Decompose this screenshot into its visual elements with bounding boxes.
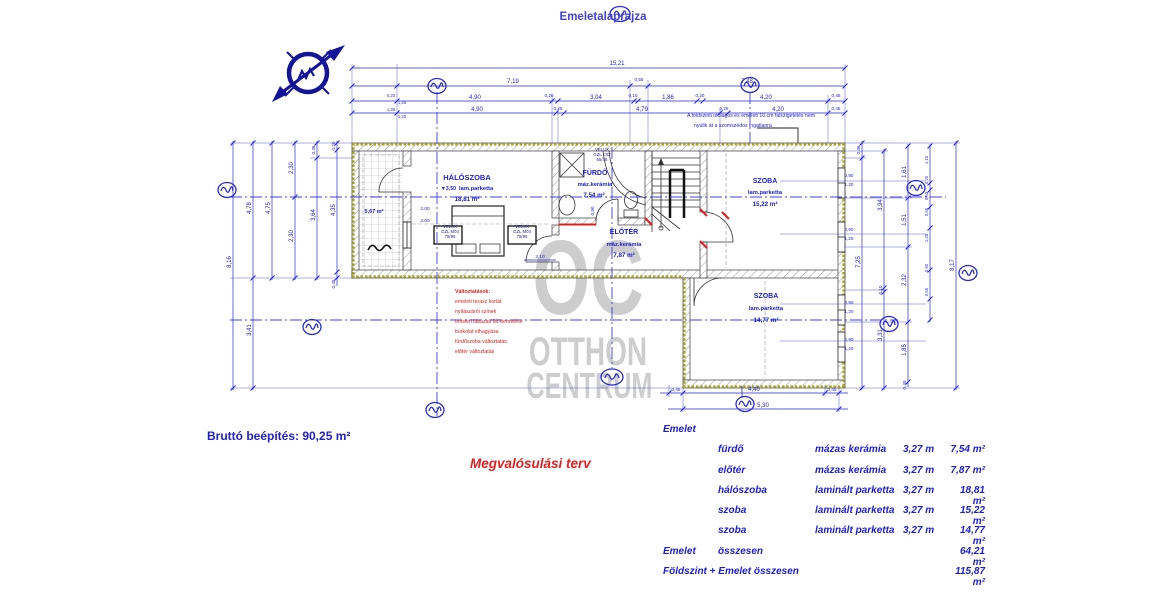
window-tag: 0,90 xyxy=(845,227,854,232)
dim-label: 3,64 xyxy=(311,209,317,221)
summary-height: 3,27 m xyxy=(903,525,945,536)
staircase xyxy=(652,151,700,232)
insulation-note: nyúlik át a szomszédos ingatlanra xyxy=(694,123,772,129)
dim-label: 1,85 xyxy=(902,344,908,356)
velux-label: 55/78 xyxy=(597,157,608,162)
dim-label: 0,55 xyxy=(635,77,644,82)
dim-label: 0,53 xyxy=(924,191,929,200)
summary-height: 3,27 m xyxy=(903,505,945,516)
dim-label: 7,48 xyxy=(741,79,753,85)
room-finish: máz.kerámia xyxy=(578,182,614,188)
velux-label: 78/98 xyxy=(445,234,456,239)
dim-label: 0,10 xyxy=(878,285,883,294)
dim-label: 2,30 xyxy=(289,162,295,174)
dim-label: 0,65 xyxy=(924,287,929,296)
dim-label: 0,25 xyxy=(720,106,729,111)
summary-area: 14,77 m² xyxy=(945,525,985,547)
dim-label: 7,19 xyxy=(507,79,519,85)
summary-height: 3,27 m xyxy=(903,444,945,455)
room-name: FÜRDŐ xyxy=(583,168,608,177)
room-name: ELŐTÉR xyxy=(610,227,638,236)
summary-area: 7,87 m² xyxy=(945,465,985,476)
dim-label: 1,26 xyxy=(398,100,407,105)
change-note: Változtatások: xyxy=(455,289,490,295)
summary-header: Emelet xyxy=(663,424,718,435)
dim-label: 7,25 xyxy=(856,256,862,268)
dim-label: 1,51 xyxy=(902,214,908,226)
window-tag: 1,20 xyxy=(845,182,854,187)
change-note: előtér változtatás xyxy=(455,349,495,355)
dim-label: 0,46 xyxy=(856,145,861,154)
summary-total-area: 64,21 m² xyxy=(945,546,985,568)
plan-type-label: Megvalósulási terv xyxy=(470,456,591,471)
dim-label: 1,20 xyxy=(398,114,407,119)
dim-label: 0,20 xyxy=(387,93,396,98)
gross-area-label: Bruttó beépítés: 90,25 m² xyxy=(207,429,350,443)
dim-label: 0,25 xyxy=(554,106,563,111)
terrace-area: 5,67 m² xyxy=(365,208,384,215)
washbasin xyxy=(559,195,575,215)
note-leader xyxy=(757,128,798,143)
dim-label: 4,20 xyxy=(760,95,772,101)
summary-height: 3,27 m xyxy=(903,465,945,476)
summary-grand-label: Földszint + Emelet összesen xyxy=(663,566,945,577)
dim-label: 0,46 xyxy=(311,145,316,154)
summary-finish: laminált parketta xyxy=(815,485,903,496)
window-tag: 0,90 xyxy=(845,337,854,342)
dim-label: 1,15 xyxy=(924,155,929,164)
dim-label: 0,45 xyxy=(832,93,841,98)
room-finish: lam.parketta xyxy=(749,306,784,312)
dim-label: 4,90 xyxy=(469,95,481,101)
dim-label: 0,45 xyxy=(832,106,841,111)
window-tag: 0,90 xyxy=(845,300,854,305)
dim-label: 0,20 xyxy=(696,93,705,98)
dim-label: 0,45 xyxy=(828,387,837,392)
room-name: HÁLÓSZOBA xyxy=(443,173,491,182)
room-area: 7,54 m² xyxy=(583,192,604,199)
dim-label: 0,90 xyxy=(924,263,929,272)
dim-label: 0,20 xyxy=(331,141,336,150)
dim-label: 4,78 xyxy=(247,202,253,214)
compass-rose xyxy=(272,45,345,102)
window-tag: 1,20 xyxy=(845,309,854,314)
room-area: 15,22 m² xyxy=(753,201,778,208)
dim-label: 3,04 xyxy=(590,95,602,101)
change-note: emeleti lábazati fal kiemelése xyxy=(455,319,523,325)
toilet-tank xyxy=(624,210,638,217)
summary-area: 15,22 m² xyxy=(945,505,985,527)
area-summary-table: Emelet fürdő mázas kerámia 3,27 m 7,54 m… xyxy=(663,424,985,586)
dim-label: 0,10 xyxy=(629,93,638,98)
insulation-note: A földszinti utólagos és emeleti 10 cm f… xyxy=(687,113,815,119)
summary-room: hálószoba xyxy=(718,485,815,496)
dim-label: 4,90 xyxy=(471,107,483,113)
summary-area: 18,81 m² xyxy=(945,485,985,507)
room-finish: lam.parketta xyxy=(748,190,783,196)
summary-finish: mázas kerámia xyxy=(815,444,903,455)
dim-label: 4,35 xyxy=(331,204,337,216)
summary-finish: laminált parketta xyxy=(815,505,903,516)
summary-area: 7,54 m² xyxy=(945,444,985,455)
dim-label: 8,17 xyxy=(950,259,956,271)
room-finish-text: lam.parketta xyxy=(459,186,494,192)
page-title: Emeletalaprajza xyxy=(538,11,668,23)
summary-grand-area: 115,87 m² xyxy=(945,566,985,588)
dim-label: 5,30 xyxy=(757,403,769,409)
summary-room: előtér xyxy=(718,465,815,476)
summary-room: szoba xyxy=(718,525,815,536)
room-finish: máz.kerámia xyxy=(607,242,643,248)
dim-label: 0,45 xyxy=(672,387,681,392)
dim-label: 1,36 xyxy=(387,107,396,112)
summary-height: 3,27 m xyxy=(903,485,945,496)
dim-label: 0,20 xyxy=(924,175,929,184)
summary-total-word: összesen xyxy=(718,546,815,557)
room-finish: ▼3,50lam.parketta xyxy=(441,186,494,192)
summary-room: szoba xyxy=(718,505,815,516)
dim-label: 1,61 xyxy=(902,166,908,178)
window-tag: 1,20 xyxy=(845,236,854,241)
room-area: 18,81 m² xyxy=(455,196,480,203)
change-note: burkolat elhagyása xyxy=(455,329,499,335)
dim-label: 0,45 xyxy=(331,279,336,288)
summary-room: fürdő xyxy=(718,444,815,455)
velux-label: 78/98 xyxy=(517,234,528,239)
dim-label: 1,28 xyxy=(924,233,929,242)
dim-label: 0,45 xyxy=(902,380,907,389)
dim-label: 2,00 xyxy=(420,218,430,224)
dim-label: 0,20 xyxy=(545,93,554,98)
window-tag: 1,20 xyxy=(845,346,854,351)
summary-finish: mázas kerámia xyxy=(815,465,903,476)
dim-label: 0,65 xyxy=(924,207,929,216)
dim-label: 3,31 xyxy=(878,329,884,341)
dim-label: 2,10 xyxy=(535,254,545,260)
change-note: fürdőszoba változtatás xyxy=(455,339,507,345)
dim-label: 3,94 xyxy=(878,199,884,211)
dim-label: 4,79 xyxy=(636,107,648,113)
room-area: 14,77 m² xyxy=(754,317,779,324)
summary-finish: laminált parketta xyxy=(815,525,903,536)
dim-label: 2,30 xyxy=(289,230,295,242)
dim-label: 2,32 xyxy=(902,274,908,286)
floor-plan-sheet: OC OTTHON CENTRUM xyxy=(0,0,1149,600)
summary-total-label: Emelet xyxy=(663,546,718,557)
dim-label: 1,86 xyxy=(662,95,674,101)
elevation-mark: ▼3,50 xyxy=(441,186,456,192)
dim-label: 8,16 xyxy=(227,256,233,268)
change-note: nyílászárói színek xyxy=(455,309,497,315)
dim-label: 4,75 xyxy=(266,202,272,214)
dim-label: 15,21 xyxy=(609,61,625,67)
room-name: SZOBA xyxy=(754,293,779,300)
dim-label: 0,90 xyxy=(590,206,595,215)
room-area: 7,87 m² xyxy=(613,252,634,259)
dim-label: 2,00 xyxy=(420,206,430,212)
dim-label: 3,41 xyxy=(247,324,253,336)
change-note: emeleti terasz korlát xyxy=(455,299,502,305)
room-name: SZOBA xyxy=(753,178,778,185)
window-tag: 0,90 xyxy=(845,173,854,178)
dim-label: 4,40 xyxy=(748,387,760,393)
